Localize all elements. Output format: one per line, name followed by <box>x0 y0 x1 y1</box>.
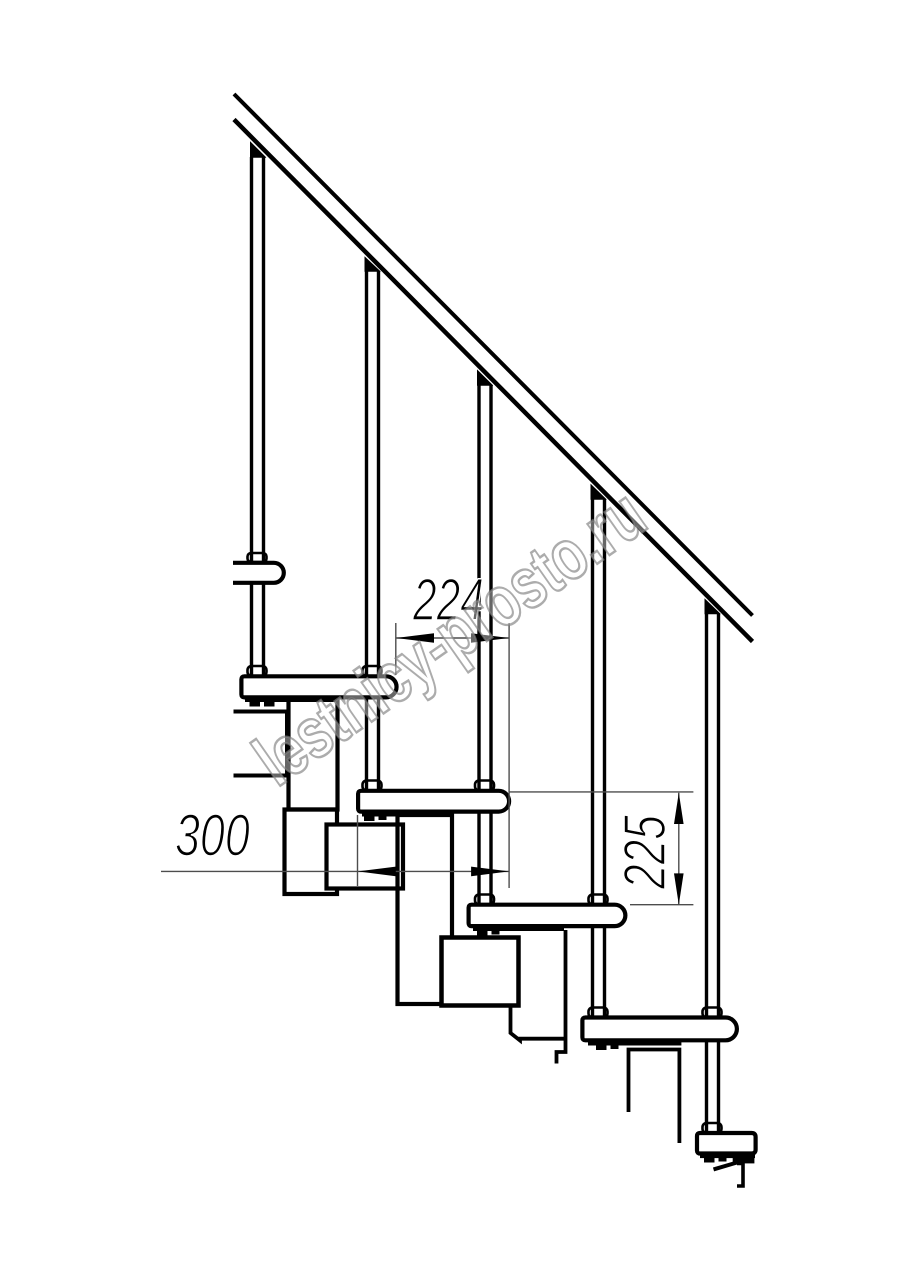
svg-text:225: 225 <box>613 814 679 890</box>
svg-text:300: 300 <box>175 804 250 869</box>
